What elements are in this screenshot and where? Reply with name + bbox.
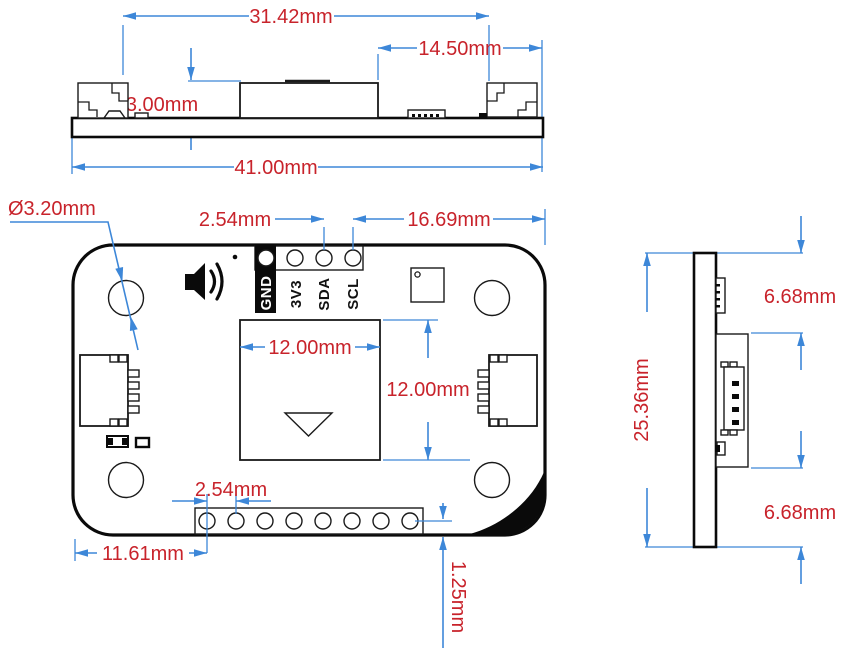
pin-label-3v3: 3V3: [288, 280, 305, 308]
dim-label-pin-pitch-bottom: 2.54mm: [195, 479, 267, 501]
connector-pin: [732, 381, 739, 386]
pin-hole: [287, 250, 303, 266]
pin-hole: [286, 513, 302, 529]
pin-hole: [228, 513, 244, 529]
smd-components: [107, 436, 149, 447]
center-component-profile: [240, 83, 378, 118]
component-tick: [479, 113, 487, 118]
connector-pin: [128, 394, 139, 401]
bottom-pin-strip: [195, 508, 423, 534]
connector-pin: [128, 370, 139, 377]
dim-label-span-inner: 31.42mm: [249, 6, 332, 28]
pin-hole: [315, 513, 331, 529]
dimension-drawing-page: 31.42mm 14.50mm 3.00mm 41.00mm: [0, 0, 850, 650]
right-connector-profile: [487, 83, 537, 117]
connector-pin: [732, 394, 739, 399]
dim-label-pin-pitch-top: 2.54mm: [199, 209, 271, 231]
connector-pin: [478, 394, 489, 401]
connector-pin: [478, 406, 489, 413]
connector-pin: [478, 370, 489, 377]
pin-label-gnd: GND: [258, 276, 275, 311]
component-pad: [135, 113, 148, 118]
dimension-drawing: 31.42mm 14.50mm 3.00mm 41.00mm: [0, 0, 850, 650]
pcb-profile-bar: [72, 118, 543, 137]
fiducial-dot: [233, 255, 238, 260]
pin-hole: [345, 250, 361, 266]
dim-label-offset-bottom-left: 11.61mm: [102, 543, 184, 565]
pin-hole: [344, 513, 360, 529]
connector-pin: [478, 382, 489, 389]
connector-pin: [128, 406, 139, 413]
side-top-connector: [716, 278, 725, 313]
mounting-hole-top-right: [475, 281, 510, 316]
pin-label-sda: SDA: [316, 277, 333, 310]
dim-label-offset-bottom: 6.68mm: [764, 502, 836, 524]
pcb-side-bar: [694, 253, 716, 547]
side-middle-connector: [715, 334, 748, 467]
dim-label-offset-top: 6.68mm: [764, 286, 836, 308]
connector-pin: [732, 420, 739, 425]
connector-pin: [732, 407, 739, 412]
dim-label-span-top-right: 16.69mm: [407, 209, 490, 231]
mounting-hole-bottom-right: [475, 463, 510, 498]
dim-label-offset-bottom-edge: 1.25mm: [447, 561, 469, 633]
pin-hole: [258, 250, 274, 266]
dim-label-sensor-width: 12.00mm: [268, 337, 351, 359]
pin-hole: [316, 250, 332, 266]
dim-label-hole-diameter: Ø3.20mm: [8, 198, 96, 220]
pin-label-scl: SCL: [345, 278, 362, 310]
pin-hole: [257, 513, 273, 529]
pin-hole: [373, 513, 389, 529]
mounting-hole-bottom-left: [109, 463, 144, 498]
dim-label-span-right: 14.50mm: [418, 38, 501, 60]
dim-label-overall-width: 41.00mm: [234, 157, 317, 179]
connector-pin: [128, 382, 139, 389]
dim-label-board-height: 25.36mm: [631, 358, 653, 441]
dim-label-sensor-height: 12.00mm: [386, 379, 469, 401]
ic-pin1-dot: [415, 272, 420, 277]
